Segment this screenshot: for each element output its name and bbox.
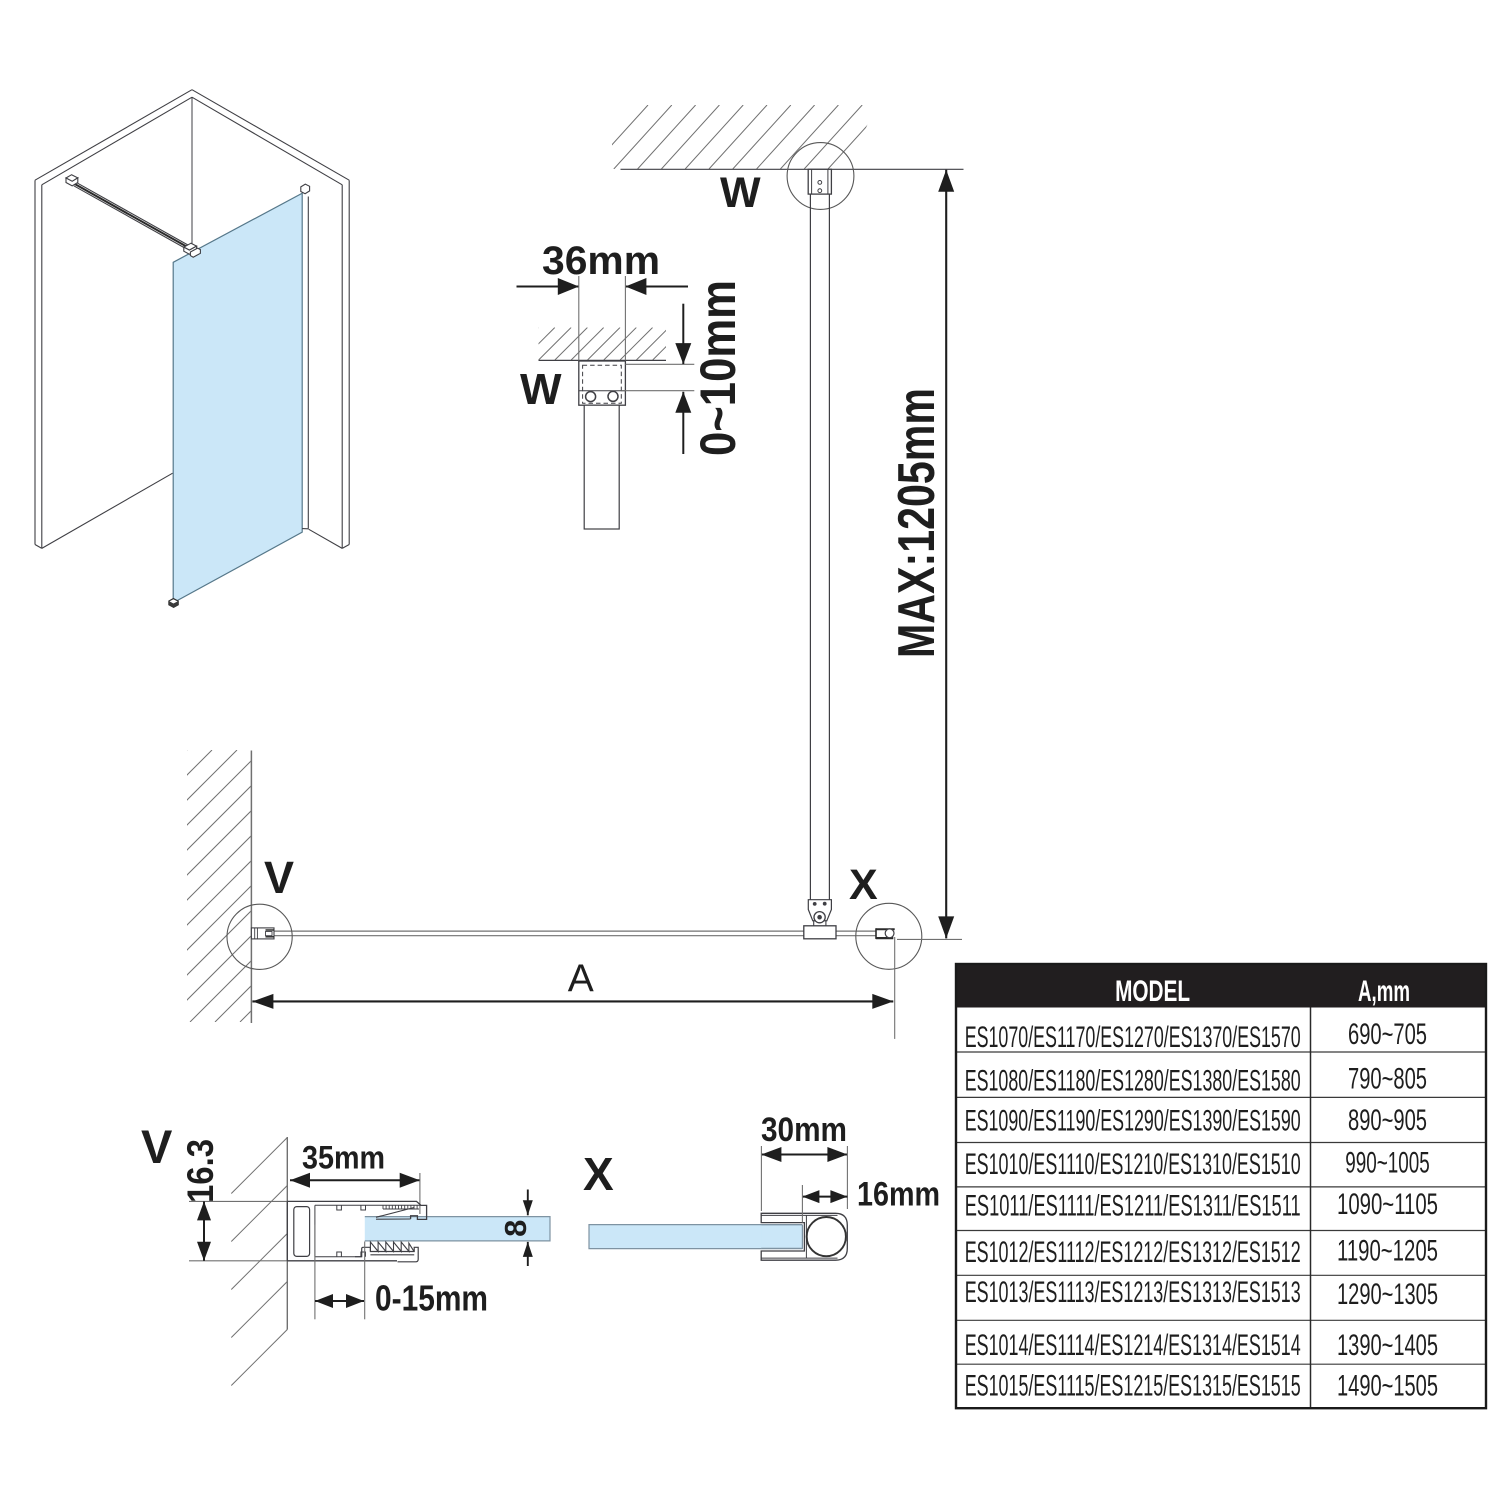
svg-text:ES1013/ES1113/ES1213/ES1313/ES: ES1013/ES1113/ES1213/ES1313/ES1513: [965, 1276, 1301, 1309]
svg-text:16.3: 16.3: [180, 1139, 221, 1203]
svg-text:790~805: 790~805: [1348, 1063, 1427, 1096]
svg-text:X: X: [849, 861, 878, 909]
svg-text:ES1014/ES1114/ES1214/ES1314/ES: ES1014/ES1114/ES1214/ES1314/ES1514: [965, 1329, 1301, 1362]
svg-text:ES1012/ES1112/ES1212/ES1312/ES: ES1012/ES1112/ES1212/ES1312/ES1512: [965, 1236, 1301, 1269]
svg-text:ES1010/ES1110/ES1210/ES1310/ES: ES1010/ES1110/ES1210/ES1310/ES1510: [965, 1148, 1301, 1181]
svg-text:ES1070/ES1170/ES1270/ES1370/ES: ES1070/ES1170/ES1270/ES1370/ES1570: [965, 1021, 1301, 1054]
svg-text:35mm: 35mm: [302, 1140, 385, 1176]
svg-text:V: V: [141, 1120, 173, 1173]
svg-text:W: W: [720, 169, 761, 217]
svg-text:V: V: [264, 852, 294, 903]
svg-text:MAX:1205mm: MAX:1205mm: [888, 388, 946, 658]
svg-text:A,mm: A,mm: [1358, 975, 1410, 1008]
svg-text:1190~1205: 1190~1205: [1337, 1235, 1438, 1268]
svg-text:890~905: 890~905: [1348, 1104, 1427, 1137]
svg-text:0-15mm: 0-15mm: [375, 1278, 488, 1319]
svg-text:ES1090/ES1190/ES1290/ES1390/ES: ES1090/ES1190/ES1290/ES1390/ES1590: [965, 1105, 1301, 1138]
svg-text:8: 8: [498, 1220, 533, 1237]
svg-text:690~705: 690~705: [1348, 1018, 1427, 1051]
svg-text:1290~1305: 1290~1305: [1337, 1278, 1438, 1311]
svg-text:990~1005: 990~1005: [1345, 1147, 1430, 1180]
svg-text:ES1080/ES1180/ES1280/ES1380/ES: ES1080/ES1180/ES1280/ES1380/ES1580: [965, 1065, 1301, 1098]
svg-text:MODEL: MODEL: [1115, 975, 1190, 1008]
svg-text:ES1011/ES1111/ES1211/ES1311/ES: ES1011/ES1111/ES1211/ES1311/ES1511: [965, 1189, 1301, 1222]
svg-text:16mm: 16mm: [857, 1176, 940, 1214]
svg-text:36mm: 36mm: [542, 239, 660, 283]
svg-text:1390~1405: 1390~1405: [1337, 1329, 1438, 1362]
svg-text:30mm: 30mm: [761, 1111, 847, 1149]
svg-text:X: X: [583, 1148, 614, 1200]
svg-text:A: A: [568, 958, 594, 1001]
svg-text:0~10mm: 0~10mm: [690, 280, 746, 456]
svg-text:ES1015/ES1115/ES1215/ES1315/ES: ES1015/ES1115/ES1215/ES1315/ES1515: [965, 1369, 1301, 1402]
svg-text:1490~1505: 1490~1505: [1337, 1369, 1438, 1402]
svg-text:W: W: [520, 365, 562, 414]
svg-text:1090~1105: 1090~1105: [1337, 1188, 1438, 1221]
